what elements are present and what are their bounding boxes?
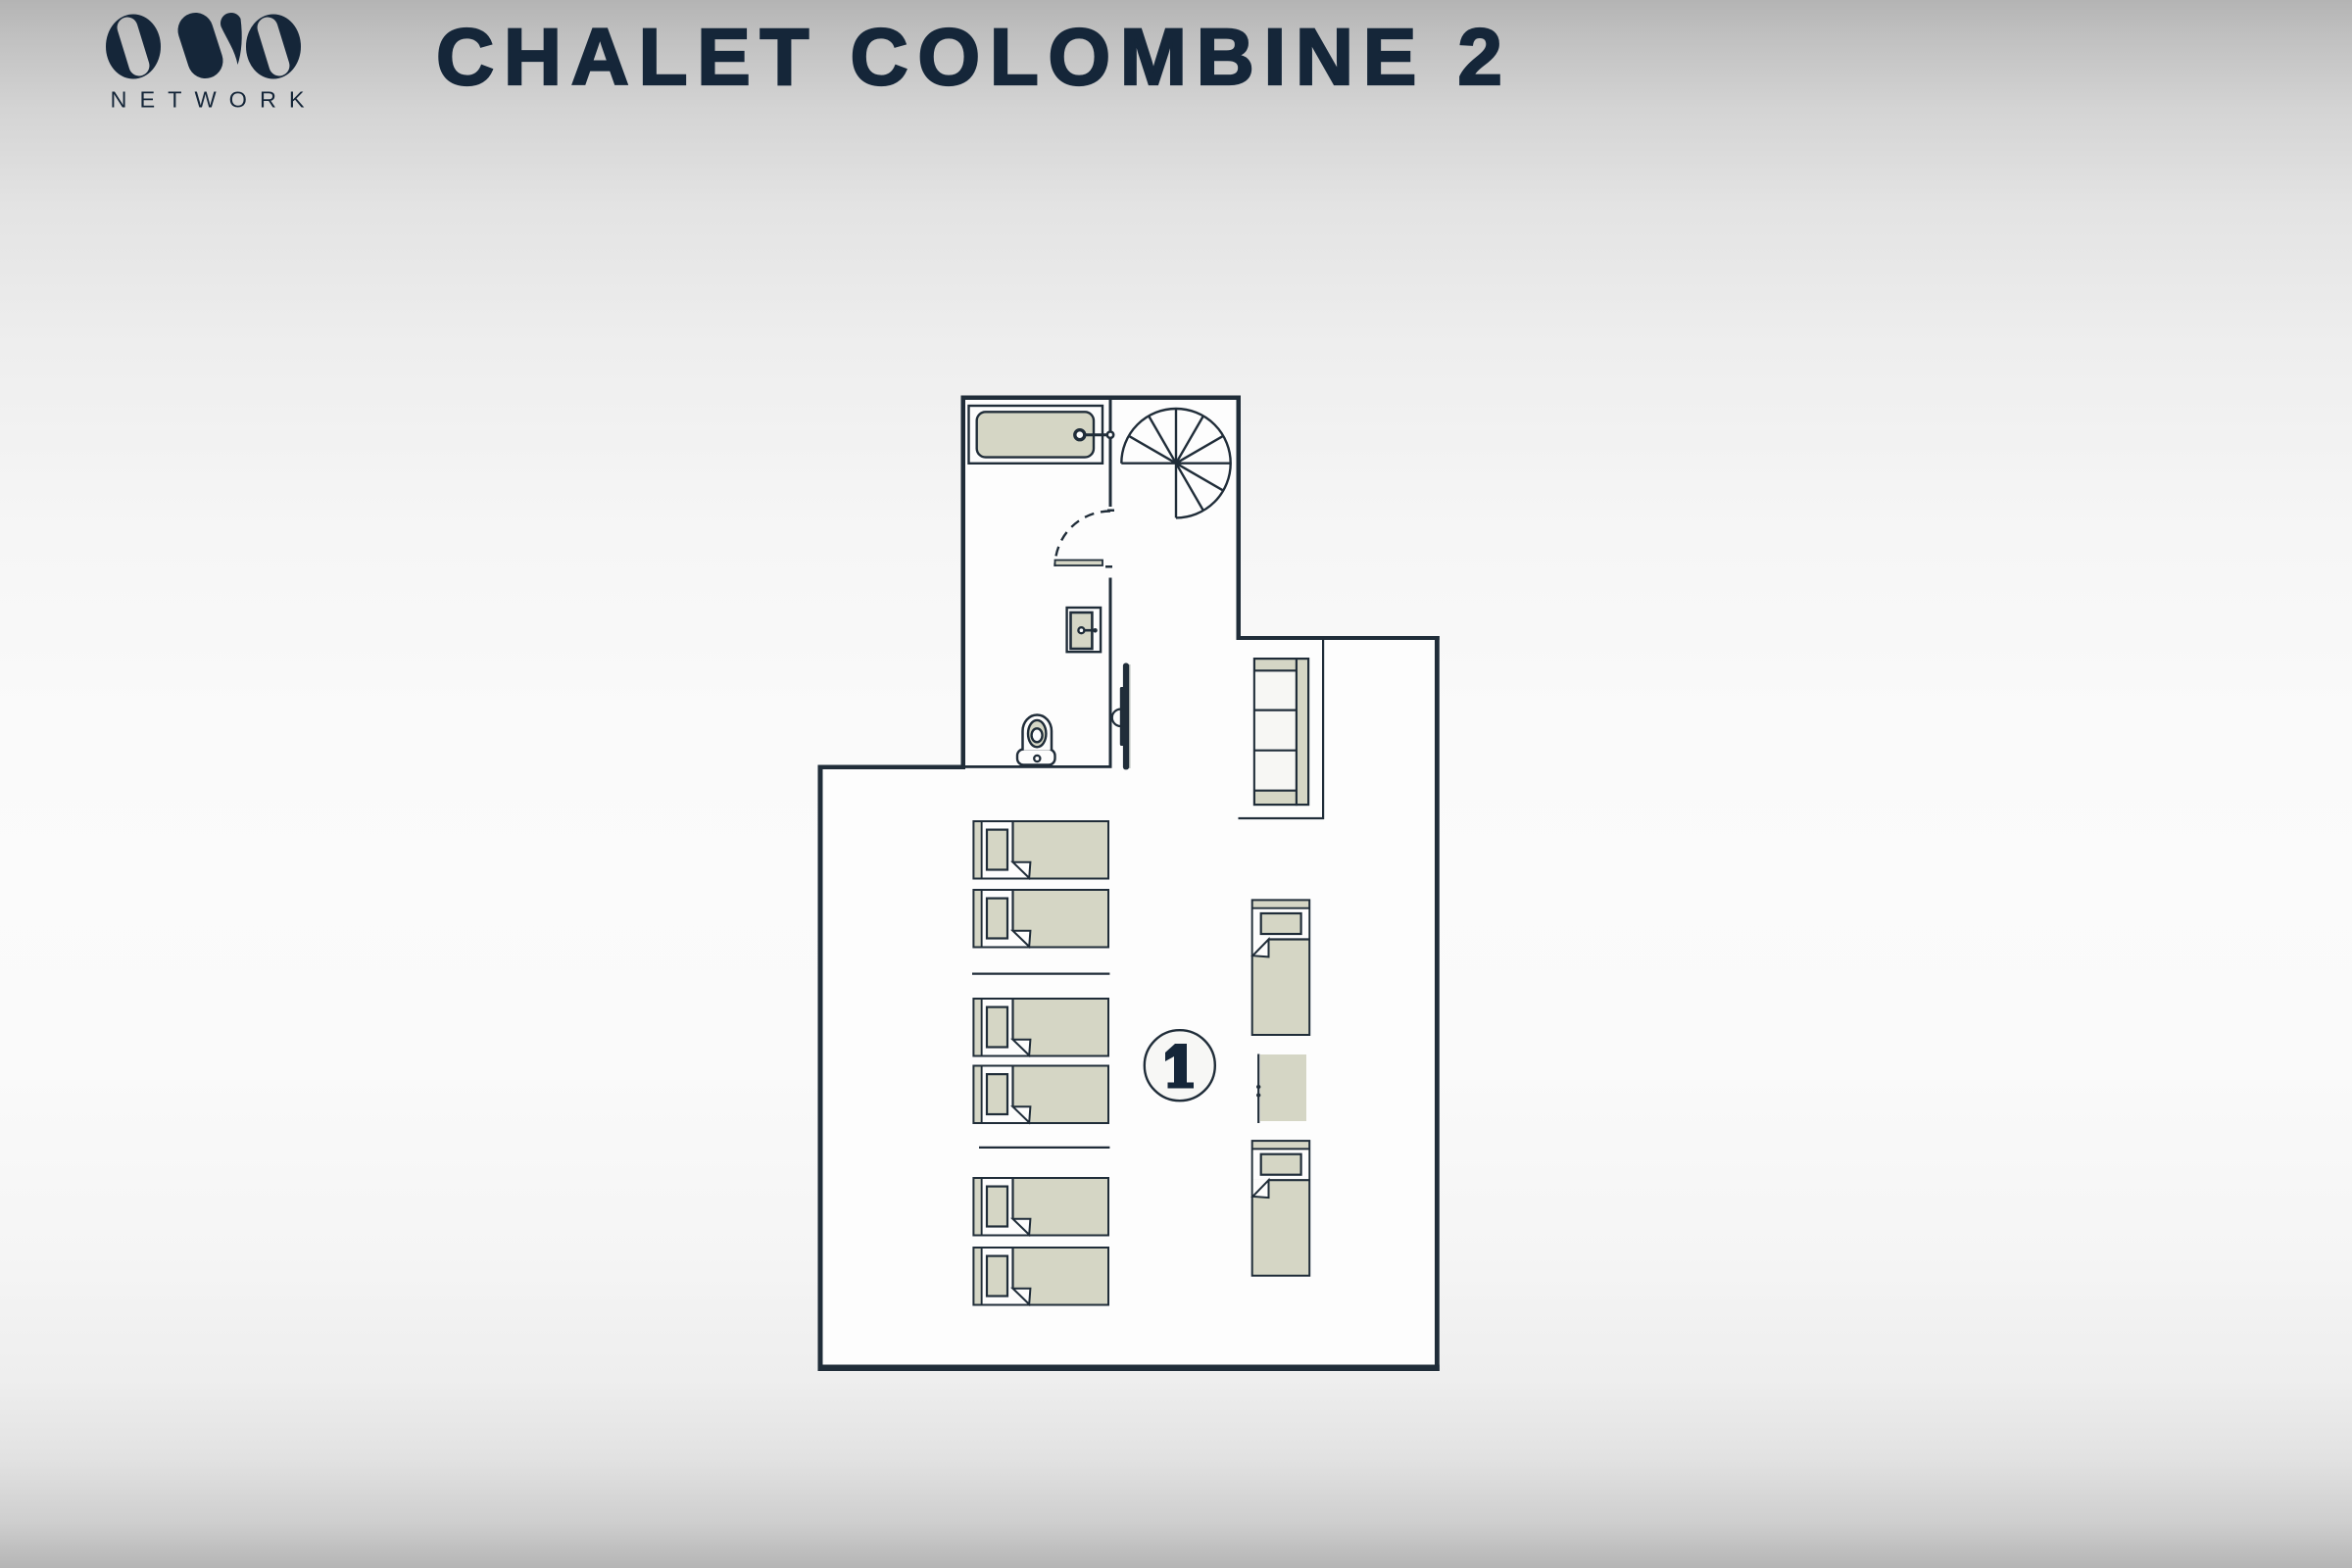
svg-text:NETWORK: NETWORK (111, 87, 318, 113)
svg-text:CHALET COLOMBINE 2: CHALET COLOMBINE 2 (436, 13, 1512, 102)
